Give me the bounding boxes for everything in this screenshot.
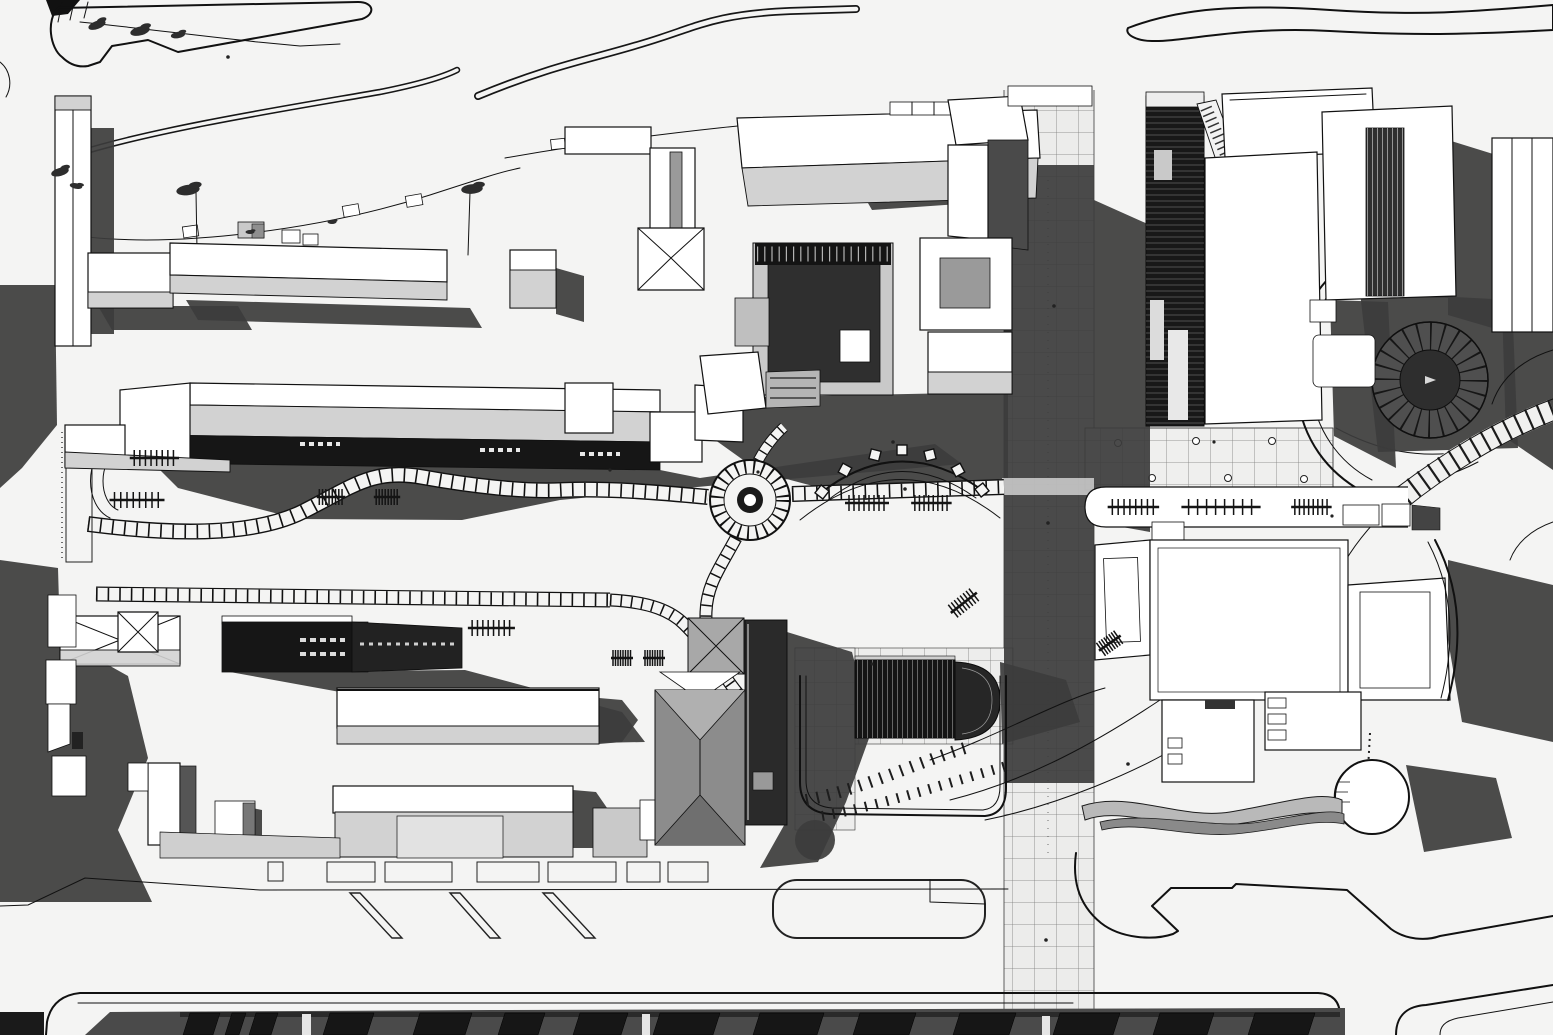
courtyard-complex xyxy=(700,96,1040,414)
diagonal-dividers xyxy=(350,893,595,938)
leaf-median-top-right xyxy=(1127,5,1553,41)
cylinder-pavilion xyxy=(1334,760,1409,834)
site-plan-stage xyxy=(0,0,1553,1035)
bottom-roads xyxy=(0,853,1553,1035)
long-building-south2 xyxy=(333,786,670,858)
loop-road-top-left xyxy=(51,2,372,66)
barrel-greenhouse xyxy=(855,656,1000,740)
main-white-building xyxy=(1095,540,1457,700)
white-pavilion-block xyxy=(1313,335,1375,387)
hook-road xyxy=(1075,853,1553,939)
ribbon-canopy xyxy=(1082,797,1344,835)
lower-left-complex xyxy=(46,595,1000,858)
corner-dark-block xyxy=(0,1012,44,1035)
bottom-street-strip xyxy=(0,1008,1345,1035)
central-roundabout xyxy=(710,460,790,540)
parking-row xyxy=(268,862,708,882)
dark-street-building xyxy=(222,616,462,672)
lower-right-complex xyxy=(1082,487,1457,835)
south-annexes xyxy=(1162,692,1370,782)
site-plan-drawing xyxy=(0,0,1553,1035)
edge-building xyxy=(1492,138,1553,332)
kiosk-cube xyxy=(282,230,300,243)
hip-roof-cluster xyxy=(655,618,787,845)
long-building-south1 xyxy=(337,688,599,744)
spiral-stair xyxy=(1372,322,1488,438)
